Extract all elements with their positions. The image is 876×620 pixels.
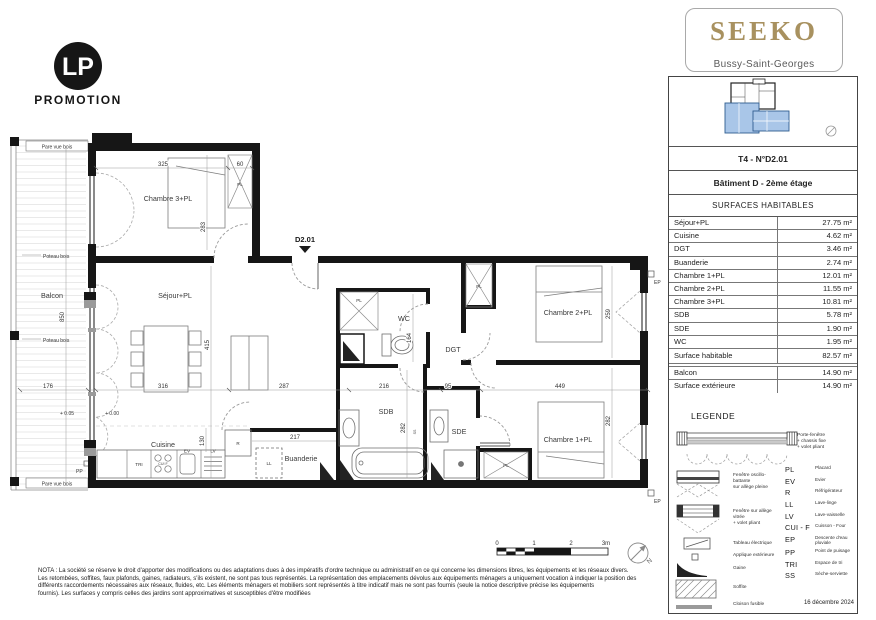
seeko-city: Bussy-Saint-Georges [686, 59, 842, 70]
row-label: Surface extérieure [669, 380, 777, 393]
ep-label-top: EP [654, 280, 661, 286]
legend: LEGENDE Porte-fenêtre+ chassis fixe+ vol… [669, 393, 857, 611]
dimension-labels: 325 60 283 850 176 316 287 216 95 449 41… [43, 162, 612, 446]
closet-label-ch1: PL [503, 463, 509, 468]
row-label: Chambre 1+PL [669, 270, 777, 282]
row-value: 2.74 m² [777, 257, 857, 269]
row-label: Chambre 2+PL [669, 283, 777, 295]
balcony-deck-lines [16, 146, 86, 484]
nota-line: Les retombées, soffites, faux plafonds, … [38, 576, 660, 584]
gaine-wedge-icon [320, 462, 334, 480]
table-row-balcon: Balcon14.90 m² [669, 367, 857, 380]
gaine-icon [675, 561, 709, 579]
row-value: 12.01 m² [777, 270, 857, 282]
row-label: Balcon [669, 367, 777, 379]
row-value: 82.57 m² [777, 349, 857, 363]
room-label-chambre2: Chambre 2+PL [544, 308, 593, 317]
dim-325: 325 [158, 162, 169, 168]
row-value: 1.95 m² [777, 336, 857, 348]
dining-table [144, 326, 188, 392]
legend-abbreviations: PLPlacard EVEvier RRéfrigérateur LLLave-… [785, 465, 855, 583]
nota-line: différents raccordements nécessaires aux… [38, 583, 660, 591]
nota-line: NOTA : La société se réserve le droit d'… [38, 568, 660, 576]
ep-markers: EP EP [648, 271, 661, 505]
table-row: Buanderie2.74 m² [669, 257, 857, 270]
dim-259: 259 [606, 308, 612, 319]
row-value: 11.55 m² [777, 283, 857, 295]
legend-item-label: Tableau électrique [733, 541, 783, 547]
room-label-buanderie: Buanderie [285, 454, 318, 463]
floor-plan-sheet: LP PROMOTION Pare vue bois Pare vue bois… [0, 0, 876, 620]
row-value: 1.90 m² [777, 323, 857, 335]
abbrev-row: SSSèche-serviette [785, 571, 855, 580]
row-value: 14.90 m² [777, 367, 857, 379]
table-row-total: Surface habitable82.57 m² [669, 349, 857, 364]
bed-ch2 [536, 266, 602, 342]
abbrev-row: LLLave-linge [785, 500, 855, 509]
cui-label: CUI F [158, 462, 168, 466]
legend-item-label: Fenêtre oscillo-battantesur allège plein… [733, 473, 783, 491]
balcony: Pare vue bois Pare vue bois Balcon Potea… [10, 137, 89, 490]
row-value: 27.75 m² [777, 217, 857, 229]
applique-icon [691, 553, 699, 561]
dim-316: 316 [158, 384, 169, 390]
entrance-arrow-icon [299, 246, 311, 253]
row-label: Surface habitable [669, 349, 777, 363]
table-row-exterieure: Surface extérieure14.90 m² [669, 380, 857, 393]
room-label-sdb: SDB [379, 407, 394, 416]
post-leaders [22, 255, 41, 339]
room-label-cuisine: Cuisine [151, 440, 175, 449]
dim-282-sdb: 282 [401, 422, 407, 433]
wood-post [10, 477, 19, 486]
row-label: Chambre 3+PL [669, 296, 777, 308]
table-row: Chambre 1+PL12.01 m² [669, 270, 857, 283]
closet-label-ch3: PL [237, 182, 243, 187]
furniture [131, 158, 604, 478]
entrance-marker: D2.01 [295, 235, 315, 253]
chair [131, 352, 143, 366]
row-label: SDE [669, 323, 777, 335]
screen-label-top: Pare vue bois [42, 145, 73, 151]
sde-sink [430, 410, 448, 442]
info-panel: SEEKO Bussy-Saint-Georges T4 - N°D2.01 B… [668, 8, 858, 614]
dim-95: 95 [445, 384, 452, 390]
abbrev-row: CUI - FCuisson - Four [785, 523, 855, 532]
scale-2: 2 [569, 541, 573, 547]
dim-164: 164 [407, 332, 413, 343]
ep-label-bottom: EP [654, 499, 661, 505]
cloison-fusible-icon [675, 604, 713, 610]
abbrev-row: PPPoint de puisage [785, 548, 855, 557]
dim-287: 287 [279, 384, 290, 390]
chair [131, 331, 143, 345]
porte-fenetre-icon [675, 429, 799, 465]
abbrev-row: LVLave-vaisselle [785, 512, 855, 521]
room-label-dgt: DGT [445, 345, 461, 354]
key-map-drawing [669, 77, 857, 145]
room-label-sejour: Séjour+PL [158, 291, 192, 300]
ev-label: EV [184, 449, 191, 454]
seeko-logo: SEEKO Bussy-Saint-Georges [685, 8, 843, 72]
ss-label: SS [413, 429, 417, 434]
level-balcony: + 0.05 [60, 411, 74, 417]
closet-label-dgt: PL [476, 284, 482, 289]
tri-label: TRI [135, 462, 142, 467]
abbrev-row: PLPlacard [785, 465, 855, 474]
table-row: SDE1.90 m² [669, 323, 857, 336]
scale-0: 0 [495, 541, 499, 547]
windows [84, 171, 648, 464]
row-label: Cuisine [669, 230, 777, 242]
wood-post [10, 137, 19, 146]
r-label: R [236, 441, 240, 446]
toilet-tank [382, 334, 391, 356]
floor-plan-drawing: LP PROMOTION Pare vue bois Pare vue bois… [0, 0, 668, 620]
row-label: Séjour+PL [669, 217, 777, 229]
soffite-icon [675, 579, 717, 599]
room-label-sde: SDE [452, 427, 467, 436]
chair [131, 373, 143, 387]
key-map [669, 77, 857, 147]
gaine-wedge-icon [431, 462, 444, 480]
abbrev-row: TRIEspace de tri [785, 560, 855, 569]
sdb-sink [339, 410, 359, 446]
table-row: Séjour+PL27.75 m² [669, 217, 857, 230]
row-label: SDB [669, 309, 777, 321]
panel-box: T4 - N°D2.01 Bâtiment D - 2ème étage SUR… [668, 76, 858, 614]
dim-217: 217 [290, 435, 301, 441]
seeko-brand-name: SEEKO [686, 16, 842, 47]
ll-label: LL [266, 461, 272, 466]
room-label-balcon: Balcon [41, 291, 63, 300]
row-label: Buanderie [669, 257, 777, 269]
north-label: N [646, 557, 654, 566]
dim-130: 130 [200, 435, 206, 446]
dim-283: 283 [201, 221, 207, 232]
table-row: SDB5.78 m² [669, 309, 857, 322]
building-floor: Bâtiment D - 2ème étage [669, 171, 857, 195]
table-row: Chambre 2+PL11.55 m² [669, 283, 857, 296]
table-row: Cuisine4.62 m² [669, 230, 857, 243]
row-value: 4.62 m² [777, 230, 857, 242]
legend-item-label: Gaine [733, 566, 783, 572]
legend-item-label: Soffite [733, 585, 783, 591]
unit-door-label: D2.01 [295, 235, 315, 244]
wood-post [10, 331, 19, 340]
level-floor: + 0.00 [105, 411, 119, 417]
dim-60: 60 [237, 162, 244, 168]
screen-label-bottom: Pare vue bois [42, 482, 73, 488]
row-value: 3.46 m² [777, 243, 857, 255]
row-value: 5.78 m² [777, 309, 857, 321]
legend-item-label: Applique extérieure [733, 553, 783, 559]
kitchen-counter [96, 426, 250, 478]
abbrev-row: EVEvier [785, 477, 855, 486]
legend-item-label: Porte-fenêtre+ chassis fixe+ volet plian… [797, 433, 853, 451]
nota-line: fournis). Les surfaces y compris celles … [38, 591, 660, 599]
scale-bar: 0 1 2 3m [495, 541, 610, 555]
legend-item-label: Cloison fusible [733, 602, 783, 608]
north-arrow-icon: N [628, 543, 654, 566]
lp-logo-name: PROMOTION [34, 93, 122, 107]
bed-ch3 [168, 158, 225, 228]
surfaces-table: Séjour+PL27.75 m² Cuisine4.62 m² DGT3.46… [669, 217, 857, 393]
room-label-wc: WC [398, 314, 410, 323]
dim-415: 415 [205, 339, 211, 350]
table-row: WC1.95 m² [669, 336, 857, 349]
dim-449: 449 [555, 384, 566, 390]
lp-logo-monogram: LP [62, 53, 94, 81]
dim-176: 176 [43, 384, 54, 390]
sofa [231, 336, 268, 390]
chair [189, 352, 201, 366]
nota-text: NOTA : La société se réserve le droit d'… [38, 568, 660, 598]
tableau-electrique-icon [683, 537, 711, 551]
dim-282-ch1: 282 [606, 415, 612, 426]
legend-title: LEGENDE [691, 411, 735, 421]
legend-item-label: Fenêtre sur allège vitrée+ volet pliant [733, 509, 783, 527]
table-row: DGT3.46 m² [669, 243, 857, 256]
table-row: Chambre 3+PL10.81 m² [669, 296, 857, 309]
scale-1: 1 [532, 541, 536, 547]
row-label: DGT [669, 243, 777, 255]
row-value: 10.81 m² [777, 296, 857, 308]
room-label-chambre3: Chambre 3+PL [144, 194, 193, 203]
closet-label-wc: PL [356, 298, 362, 303]
plan-date: 16 décembre 2024 [804, 600, 854, 606]
room-labels: Chambre 3+PL Séjour+PL WC DGT Chambre 2+… [105, 194, 592, 463]
abbrev-row: RRéfrigérateur [785, 488, 855, 497]
pp-label: PP [76, 469, 83, 475]
row-value: 14.90 m² [777, 380, 857, 393]
fenetre-allege-icon [675, 503, 721, 535]
chair [189, 331, 201, 345]
row-label: WC [669, 336, 777, 348]
abbrev-row: EPDescente d'eau pluviale [785, 535, 855, 546]
lp-promotion-logo: LP PROMOTION [34, 42, 122, 107]
scale-3m: 3m [602, 541, 610, 547]
dim-850: 850 [60, 311, 66, 322]
fenetre-oscillo-icon [675, 469, 721, 499]
unit-number: T4 - N°D2.01 [669, 147, 857, 171]
surfaces-title: SURFACES HABITABLES [669, 195, 857, 217]
dim-216: 216 [379, 384, 390, 390]
room-label-chambre1: Chambre 1+PL [544, 435, 593, 444]
chair [189, 373, 201, 387]
